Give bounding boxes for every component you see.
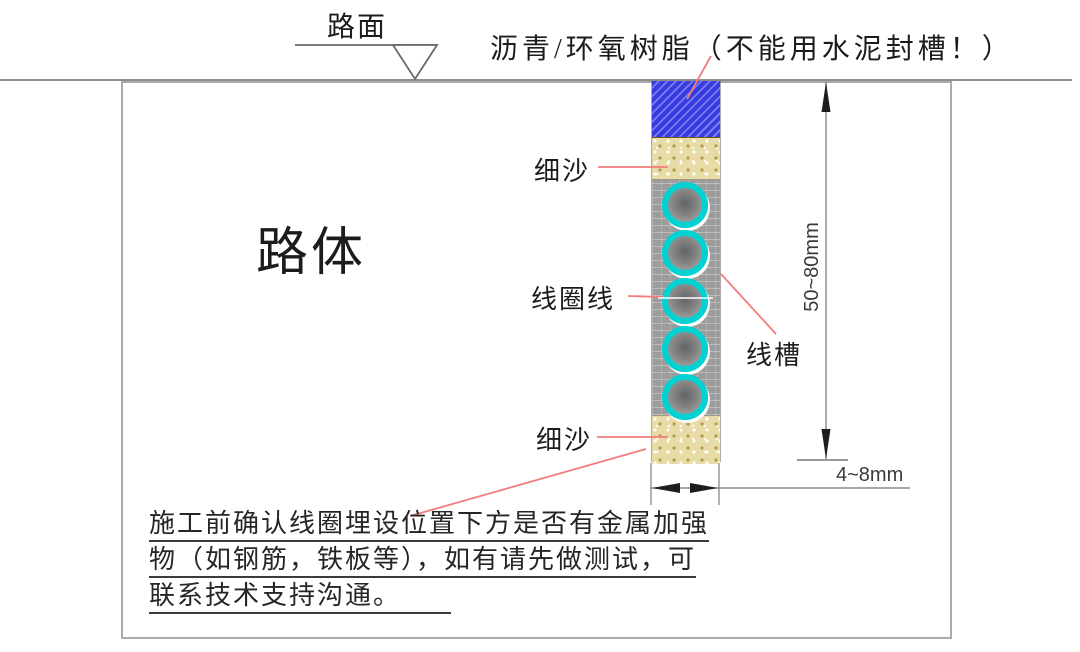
- wire-slot-label: 线槽: [746, 335, 802, 372]
- coil-wire-circle: [662, 278, 708, 324]
- fine-sand-top-section: [652, 138, 720, 180]
- seal-material-label: 沥青/环氧树脂（不能用水泥封槽！）: [490, 27, 1014, 67]
- wire-slot-column: [651, 81, 721, 462]
- asphalt-epoxy-seal-section: [652, 81, 720, 138]
- construction-note-line-1: 施工前确认线圈埋设位置下方是否有金属加强: [149, 509, 709, 542]
- road-body-label: 路体: [256, 210, 366, 285]
- coil-wire-circle: [662, 374, 708, 420]
- construction-note-line-2: 物（如钢筋，铁板等），如有请先做测试，可: [149, 545, 696, 578]
- coil-wire-circle: [662, 326, 708, 372]
- coil-wire-label: 线圈线: [531, 279, 615, 316]
- loop-installation-diagram: 路面 沥青/环氧树脂（不能用水泥封槽！） 细沙 线圈线 线槽 细沙 路体 50~…: [0, 0, 1080, 652]
- fine-sand-top-label: 细沙: [534, 151, 590, 188]
- fine-sand-bottom-section: [652, 415, 720, 464]
- road-surface-label: 路面: [327, 5, 387, 45]
- coil-wire-circle: [662, 230, 708, 276]
- construction-note: 施工前确认线圈埋设位置下方是否有金属加强 物（如钢筋，铁板等），如有请先做测试，…: [149, 509, 709, 617]
- fine-sand-bottom-label: 细沙: [536, 420, 592, 457]
- coil-stack: [652, 180, 720, 415]
- slot-depth-dimension: 50~80mm: [801, 211, 823, 323]
- coil-wire-circle: [662, 182, 708, 228]
- level-marker-triangle: [393, 45, 437, 79]
- slot-width-dimension: 4~8mm: [836, 464, 903, 487]
- construction-note-line-3: 联系技术支持沟通。: [149, 581, 451, 614]
